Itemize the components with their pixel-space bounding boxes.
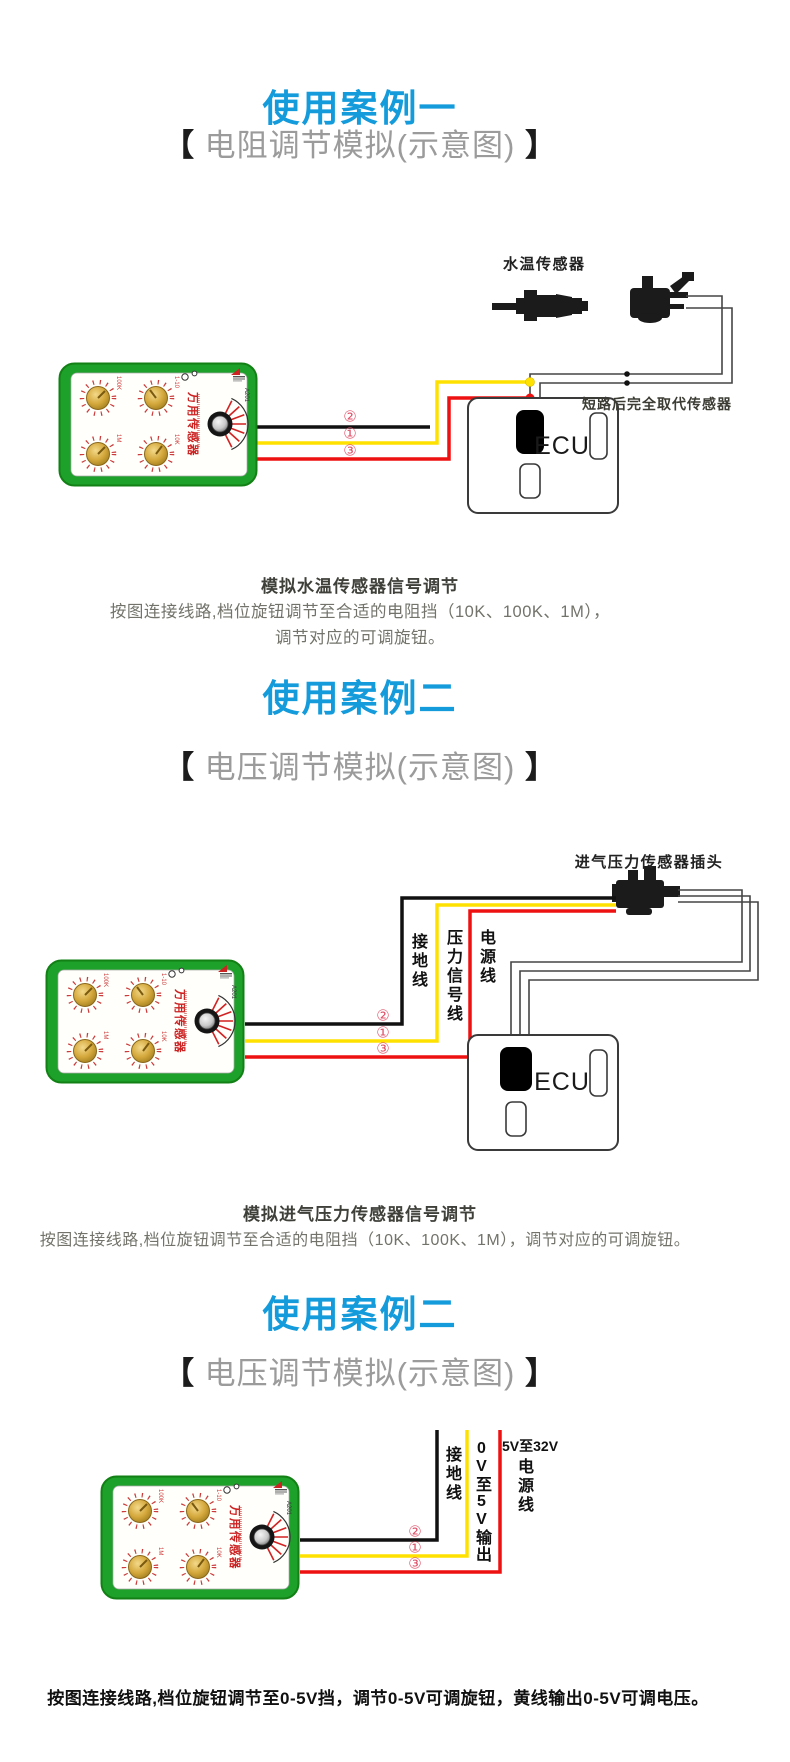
section1-body-line2: 调节对应的可调旋钮。: [0, 624, 720, 648]
yellow-connection-dot: [526, 378, 535, 387]
bracket-left: 【: [163, 1356, 195, 1391]
ecu-label: ECU: [534, 432, 590, 461]
section2-title: 使用案例二: [0, 668, 720, 722]
bracket-left: 【: [163, 750, 195, 785]
junction-dot: [624, 380, 630, 386]
ground-wire-label: 接地线: [408, 933, 426, 990]
wire-number-badge: ②: [343, 410, 356, 425]
wire-number-badge: ②: [408, 1525, 421, 1540]
water-temp-sensor-label: 水温传感器: [503, 253, 586, 274]
harness-wire: [529, 902, 758, 1047]
bypass-note: 短路后完全取代传感器: [582, 394, 732, 414]
wire-number-badge: ①: [376, 1026, 389, 1041]
ecu-slot: [590, 413, 607, 459]
section1-caption: 模拟水温传感器信号调节: [0, 572, 720, 597]
replacement-connector-silhouette: [630, 272, 694, 323]
wire-number-badge: ①: [408, 1541, 421, 1556]
pressure-plug-label: 进气压力传感器插头: [575, 851, 724, 872]
ecu-label: ECU: [534, 1068, 590, 1097]
bracket-right: 】: [525, 750, 557, 785]
junction-dot: [624, 371, 630, 377]
section2-subtitle: 【 电压调节模拟(示意图) 】: [0, 742, 720, 787]
section2-subtitle-text: 电压调节模拟(示意图): [195, 750, 525, 785]
section1-body-line1: 按图连接线路,档位旋钮调节至合适的电阻挡（10K、100K、1M），: [0, 598, 720, 622]
wire-number-badge: ③: [376, 1042, 389, 1057]
section2-body: 按图连接线路,档位旋钮调节至合适的电阻挡（10K、100K、1M），调节对应的可…: [0, 1226, 730, 1250]
section3-title: 使用案例二: [0, 1284, 720, 1338]
section3-subtitle-text: 电压调节模拟(示意图): [195, 1356, 525, 1391]
power-range-label: 5V至32V: [502, 1436, 558, 1456]
product-instruction-page: 100K 1-10 1M 10K 万用传感器: [0, 0, 790, 1762]
simulator-device: [100, 1475, 300, 1600]
bracket-right: 】: [525, 1356, 557, 1391]
signal-wire-label: 压力信号线: [443, 929, 461, 1024]
output-wire-label: 0V至5V输出: [472, 1440, 490, 1563]
wire-number-badge: ①: [343, 427, 356, 442]
ecu-slot: [506, 1102, 526, 1136]
section3-footer-instruction: 按图连接线路,档位旋钮调节至0-5V挡，调节0-5V可调旋钮，黄线输出0-5V可…: [0, 1684, 756, 1709]
ecu-slot: [520, 464, 540, 498]
section3-subtitle: 【 电压调节模拟(示意图) 】: [0, 1348, 720, 1393]
simulator-device: [45, 959, 245, 1084]
simulator-device: [58, 362, 258, 487]
wire-number-badge: ③: [408, 1557, 421, 1572]
ecu-slot: [590, 1050, 607, 1096]
pressure-sensor-plug-silhouette: [612, 866, 680, 915]
water-temp-sensor-silhouette: [492, 290, 588, 321]
black-ground-wire: [245, 898, 616, 1024]
power-wire-label: 电源线: [476, 929, 494, 986]
ground-wire-label: 接地线: [442, 1446, 460, 1503]
power-wire-label: 电源线: [514, 1458, 532, 1515]
yellow-signal-wire: [245, 905, 616, 1041]
ecu-pin: [500, 1047, 532, 1091]
red-power-wire: [300, 1430, 500, 1572]
harness-wire: [520, 896, 750, 1047]
wire-number-badge: ③: [343, 444, 356, 459]
wire-number-badge: ②: [376, 1009, 389, 1024]
section2-caption: 模拟进气压力传感器信号调节: [0, 1200, 720, 1225]
